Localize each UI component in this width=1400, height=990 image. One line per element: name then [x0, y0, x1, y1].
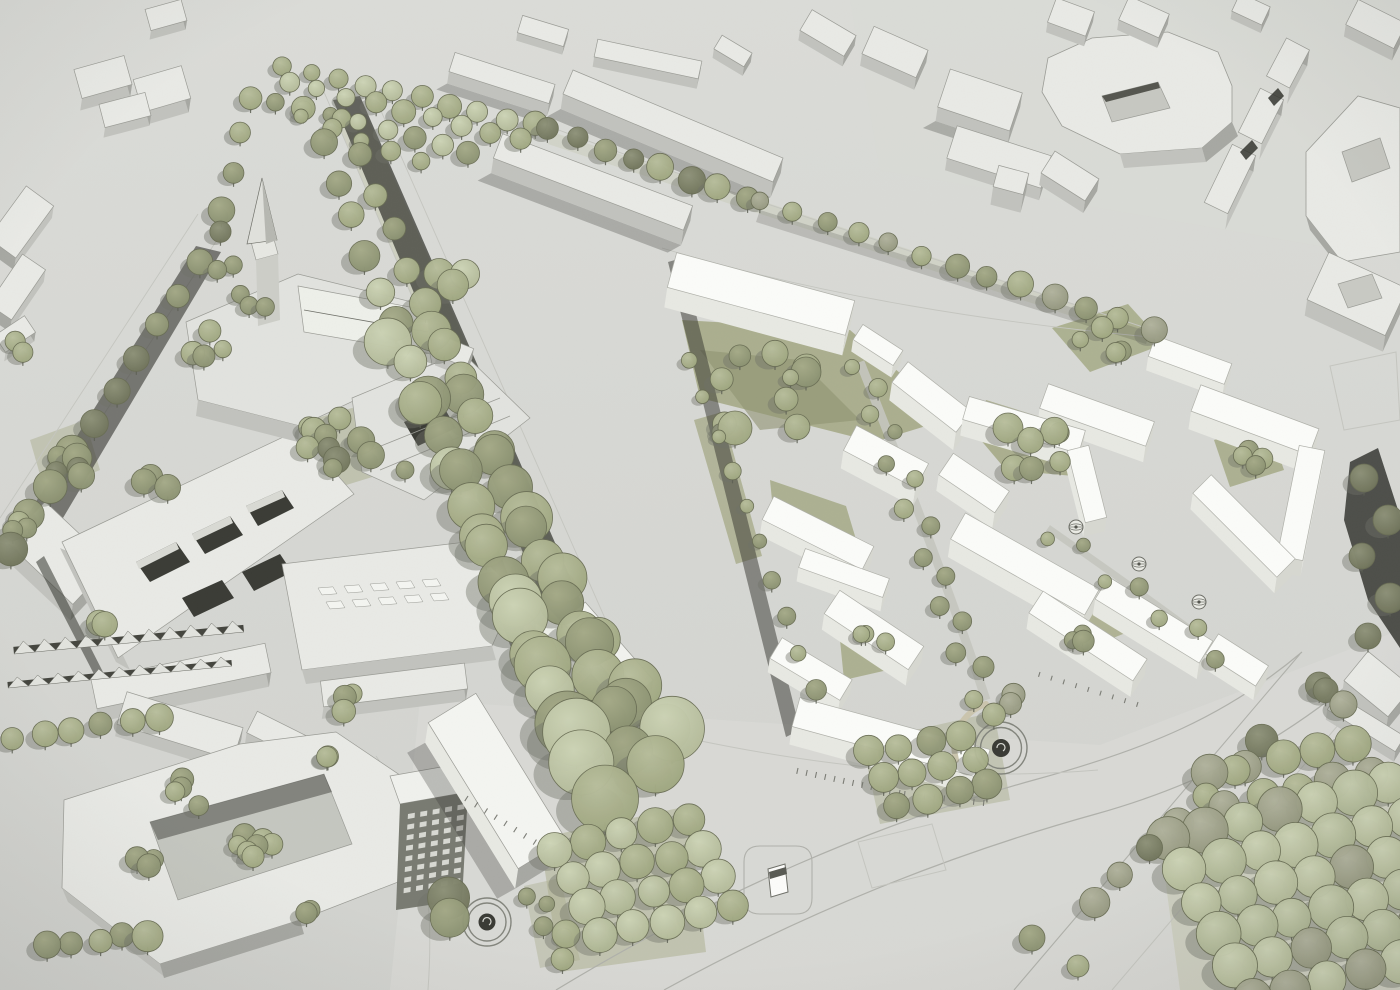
texture-layer: [0, 0, 1400, 990]
masterplan-aerial-rendering: [0, 0, 1400, 990]
vignette: [0, 0, 1400, 990]
masterplan-canvas: [0, 0, 1400, 990]
